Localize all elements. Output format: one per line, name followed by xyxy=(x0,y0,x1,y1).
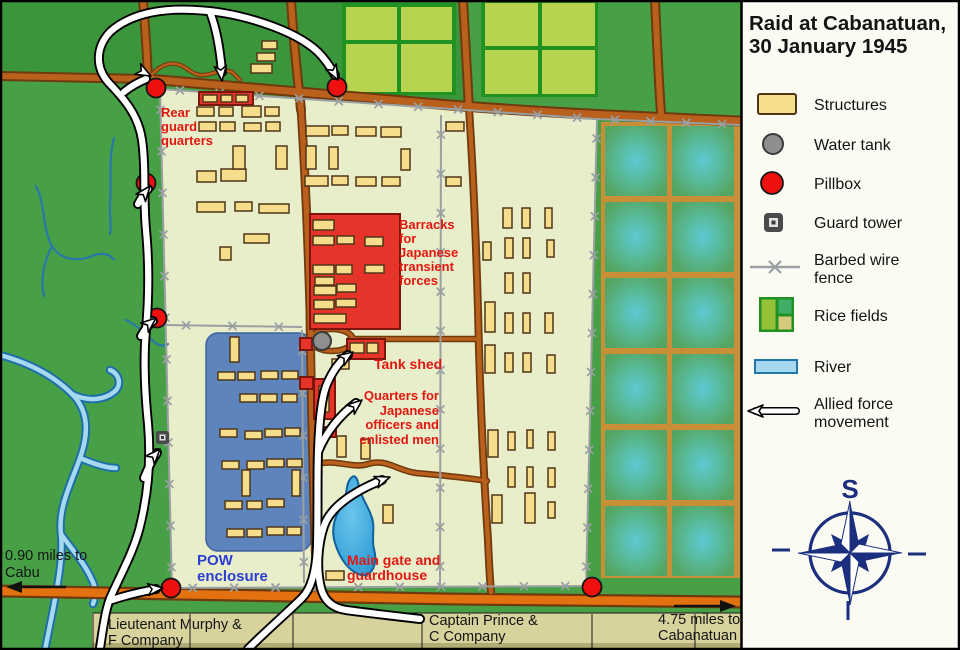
structure xyxy=(545,313,553,333)
structure xyxy=(523,313,530,333)
structure xyxy=(492,495,502,523)
structure xyxy=(262,41,277,49)
map-canvas: Rear guard quarters Barracks for Japanes… xyxy=(0,0,960,650)
structure xyxy=(220,122,235,131)
pillbox-marker xyxy=(328,78,347,97)
structure xyxy=(244,123,261,131)
structure xyxy=(332,126,348,135)
structure xyxy=(230,337,239,362)
structure xyxy=(219,107,233,116)
structure xyxy=(313,265,334,274)
structure xyxy=(332,176,348,185)
legend-label-water-tank: Water tank xyxy=(814,137,892,154)
structure xyxy=(314,286,336,295)
paddy-cell xyxy=(672,202,734,272)
structure xyxy=(367,343,378,353)
structure xyxy=(282,394,297,402)
structure xyxy=(221,95,232,102)
label-barracks: Barracks xyxy=(399,217,455,232)
structure xyxy=(365,237,383,246)
japanese-building xyxy=(300,338,312,350)
structure xyxy=(365,265,384,273)
structure xyxy=(446,177,461,186)
structure xyxy=(235,202,252,211)
structure xyxy=(547,355,555,373)
flooded-rice-paddies xyxy=(601,122,740,578)
label-cabanatuan: 4.75 miles to xyxy=(658,612,740,628)
structure xyxy=(222,461,239,469)
structure xyxy=(265,107,279,116)
structure xyxy=(505,313,513,333)
legend-label-guard-tower: Guard tower xyxy=(814,215,903,232)
label-cabanatuan: Cabanatuan xyxy=(658,628,737,644)
structure xyxy=(220,247,231,260)
structure xyxy=(523,353,531,372)
structure xyxy=(446,122,464,131)
guard-tower-icon xyxy=(764,213,783,232)
structure xyxy=(306,126,329,136)
label-barracks: for xyxy=(399,231,416,246)
structure xyxy=(485,345,495,373)
structure xyxy=(313,220,334,230)
structure xyxy=(382,177,400,186)
structure xyxy=(488,430,498,457)
structure xyxy=(401,149,410,170)
rice-field-cell xyxy=(401,7,452,40)
label-barracks: transient xyxy=(399,259,455,274)
structure xyxy=(259,204,289,213)
structure xyxy=(314,314,346,323)
label-quarters: Quarters for xyxy=(364,388,439,403)
structure xyxy=(383,505,393,523)
label-murphy: Lieutenant Murphy & xyxy=(108,617,242,633)
structure xyxy=(245,431,262,439)
structure xyxy=(220,429,237,437)
paddy-cell xyxy=(605,430,667,500)
structure xyxy=(523,273,530,293)
label-barracks: Japanese xyxy=(399,245,458,260)
pow-enclosure-area xyxy=(206,333,311,551)
label-tank-shed: Tank shed xyxy=(374,356,442,372)
legend-label-barbed-wire: Barbed wire xyxy=(814,252,899,269)
pillbox-marker xyxy=(162,579,181,598)
rice-field-cell xyxy=(485,3,538,46)
structure xyxy=(505,353,513,372)
structure xyxy=(203,95,217,102)
structure xyxy=(265,429,282,437)
rice-field-cell xyxy=(542,50,595,94)
structure xyxy=(313,236,334,245)
label-quarters: Japanese xyxy=(380,403,439,418)
label-pow: enclosure xyxy=(197,568,268,585)
rice-field-cell xyxy=(485,50,538,94)
structure xyxy=(548,468,555,487)
structure xyxy=(197,107,214,116)
label-main-gate: guardhouse xyxy=(347,567,427,583)
label-prince: Captain Prince & xyxy=(429,613,538,629)
paddy-cell xyxy=(605,354,667,424)
guard-tower-marker xyxy=(156,431,169,444)
japanese-building xyxy=(300,377,313,389)
structure xyxy=(306,146,316,169)
structure xyxy=(336,299,356,307)
legend-label-allied: Allied force xyxy=(814,396,893,413)
structure xyxy=(525,493,535,523)
river-icon xyxy=(755,360,797,373)
legend-panel: Raid at Cabanatuan, 30 January 1945 Stru… xyxy=(741,0,960,650)
structure xyxy=(329,147,338,169)
structures-swatch-icon xyxy=(758,94,796,114)
compass-south-label: S xyxy=(841,474,858,504)
structure xyxy=(483,242,491,260)
structure xyxy=(218,372,235,380)
structure xyxy=(257,53,275,61)
structure xyxy=(247,501,262,509)
structure xyxy=(261,371,278,379)
paddy-cell xyxy=(605,506,667,576)
paddy-cell xyxy=(605,278,667,348)
structure xyxy=(545,208,552,228)
structure xyxy=(197,202,225,212)
pillbox-icon xyxy=(761,172,783,194)
structure xyxy=(227,529,244,537)
structure xyxy=(221,169,246,181)
structure xyxy=(305,176,328,186)
structure xyxy=(314,300,334,309)
structure xyxy=(242,470,250,496)
structure xyxy=(251,64,272,73)
paddy-cell xyxy=(672,506,734,576)
structure xyxy=(505,273,513,293)
structure xyxy=(238,372,255,380)
paddy-cell xyxy=(672,126,734,196)
rice-field-cell xyxy=(401,44,452,92)
legend-label-pillbox: Pillbox xyxy=(814,176,861,193)
structure xyxy=(548,432,555,450)
structure xyxy=(527,430,533,448)
label-rear-guard: quarters xyxy=(161,133,213,148)
legend-label-structures: Structures xyxy=(814,97,887,114)
paddy-cell xyxy=(605,202,667,272)
pillbox-marker xyxy=(583,578,602,597)
legend-label-barbed-wire: fence xyxy=(814,270,853,287)
structure xyxy=(267,459,284,467)
structure xyxy=(276,146,287,169)
structure xyxy=(242,106,261,117)
map-area: Rear guard quarters Barracks for Japanes… xyxy=(0,0,742,650)
legend-label-rice-fields: Rice fields xyxy=(814,308,888,325)
water-tank-icon xyxy=(763,134,783,154)
structure xyxy=(247,461,264,469)
structure xyxy=(503,208,512,228)
structure xyxy=(337,284,356,292)
structure xyxy=(240,394,257,402)
structure xyxy=(197,171,216,182)
map-title: 30 January 1945 xyxy=(749,35,907,58)
structure xyxy=(356,177,376,186)
structure xyxy=(337,436,346,457)
label-murphy: F Company xyxy=(108,633,184,649)
structure xyxy=(485,302,495,332)
label-cabu: Cabu xyxy=(5,565,40,581)
structure xyxy=(508,467,515,487)
structure xyxy=(287,527,301,535)
legend-label-allied: movement xyxy=(814,414,889,431)
label-rear-guard: Rear xyxy=(161,105,190,120)
structure xyxy=(267,527,284,535)
structure xyxy=(336,265,352,274)
structure xyxy=(522,208,530,228)
structure xyxy=(287,459,302,467)
map-title: Raid at Cabanatuan, xyxy=(749,12,946,35)
structure xyxy=(236,95,248,102)
structure xyxy=(292,470,300,496)
paddy-cell xyxy=(672,354,734,424)
structure xyxy=(381,127,401,137)
structure xyxy=(547,240,554,257)
structure xyxy=(266,122,280,131)
structure xyxy=(505,238,513,258)
structure xyxy=(267,499,284,507)
structure xyxy=(247,529,262,537)
structure xyxy=(315,277,334,285)
structure xyxy=(337,236,354,244)
rice-field-cell xyxy=(346,44,397,92)
label-barracks: forces xyxy=(399,273,438,288)
label-quarters: officers and xyxy=(365,417,439,432)
structure xyxy=(282,371,298,379)
structure xyxy=(548,502,555,518)
legend-label-river: River xyxy=(814,359,852,376)
label-rear-guard: guard xyxy=(161,119,197,134)
structure xyxy=(527,467,533,487)
structure xyxy=(233,146,245,169)
rice-fields-icon xyxy=(759,297,794,332)
water-tank-marker xyxy=(313,332,331,350)
fence-line xyxy=(440,115,441,586)
structure xyxy=(225,501,242,509)
label-main-gate: Main gate and xyxy=(347,552,440,568)
structure xyxy=(508,432,515,450)
structure xyxy=(260,394,277,402)
label-prince: C Company xyxy=(429,629,506,645)
paddy-cell xyxy=(605,126,667,196)
raid-map-figure: Rear guard quarters Barracks for Japanes… xyxy=(0,0,960,650)
rice-field-cell xyxy=(346,7,397,40)
label-quarters: enlisted men xyxy=(360,432,440,447)
structure xyxy=(326,571,344,580)
label-cabu: 0.90 miles to xyxy=(5,548,87,564)
rice-field-cell xyxy=(542,3,595,46)
structure xyxy=(356,127,376,136)
structure xyxy=(523,238,530,258)
structure xyxy=(285,428,300,436)
paddy-cell xyxy=(672,430,734,500)
structure xyxy=(244,234,269,243)
paddy-cell xyxy=(672,278,734,348)
label-pow: POW xyxy=(197,552,234,569)
structure xyxy=(199,122,216,131)
